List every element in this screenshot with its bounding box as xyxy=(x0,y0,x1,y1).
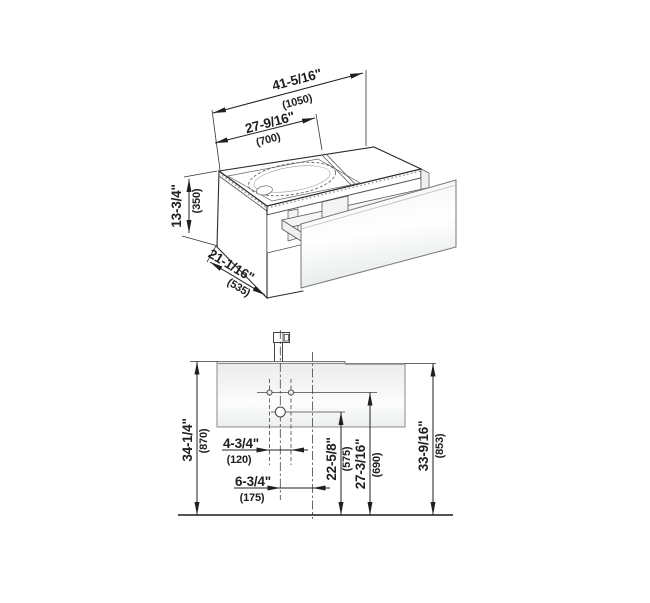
extension-line-left xyxy=(212,110,220,170)
cover-panel-edge xyxy=(322,155,352,186)
cover-panel-edge-2 xyxy=(326,154,356,185)
dim-total-width-mm: (1050) xyxy=(281,92,314,112)
tap-hole-left xyxy=(267,390,272,395)
front-view: 34-1/4" (870) 22-5/8" (575) 27-3/16" (69… xyxy=(178,330,453,519)
extension-line-height-bottom xyxy=(182,236,218,246)
dim-cabinet-height-inches: 33-9/16" xyxy=(416,421,431,472)
dim-drain-height-mm: (575) xyxy=(341,446,353,471)
dim-tap-spacing-mm: (120) xyxy=(227,454,252,466)
dim-total-width-inches: 41-5/16" xyxy=(270,66,323,94)
dim-drain-height-inches: 22-5/8" xyxy=(324,437,339,480)
tap-hole-right xyxy=(288,390,293,395)
dim-tap-hole-height-inches: 27-3/16" xyxy=(353,439,368,490)
dim-tap-hole-height-mm: (690) xyxy=(371,452,383,477)
dim-center-offset-inches: 6-3/4" xyxy=(235,474,271,489)
cabinet-bottom-edge xyxy=(267,291,303,298)
technical-drawing: 41-5/16" (1050) 27-9/16" (700) 13-3/4" (… xyxy=(0,0,650,603)
cabinet-front xyxy=(217,364,405,428)
dim-height-inches: 13-3/4" xyxy=(169,184,184,227)
dim-cabinet-height-mm: (853) xyxy=(434,433,446,458)
dim-center-offset-mm: (175) xyxy=(240,492,265,504)
washbasin-bowl xyxy=(246,157,338,201)
faucet xyxy=(274,333,290,363)
spec-sheet-page: 41-5/16" (1050) 27-9/16" (700) 13-3/4" (… xyxy=(0,0,650,603)
dim-basin-top-height-mm: (870) xyxy=(198,428,210,453)
basin-drain-detail xyxy=(256,185,273,196)
drain-outlet xyxy=(275,407,285,417)
dim-basin-width-inches: 27-9/16" xyxy=(243,109,296,137)
extension-line-height-top xyxy=(184,171,217,177)
dim-basin-top-height-inches: 34-1/4" xyxy=(180,418,195,461)
isometric-view: 41-5/16" (1050) 27-9/16" (700) 13-3/4" (… xyxy=(169,66,456,300)
dim-tap-spacing-inches: 4-3/4" xyxy=(223,436,259,451)
extension-line-right-basin xyxy=(316,114,322,150)
dim-basin-width-mm: (700) xyxy=(255,131,282,149)
dim-height-mm: (350) xyxy=(191,188,203,213)
